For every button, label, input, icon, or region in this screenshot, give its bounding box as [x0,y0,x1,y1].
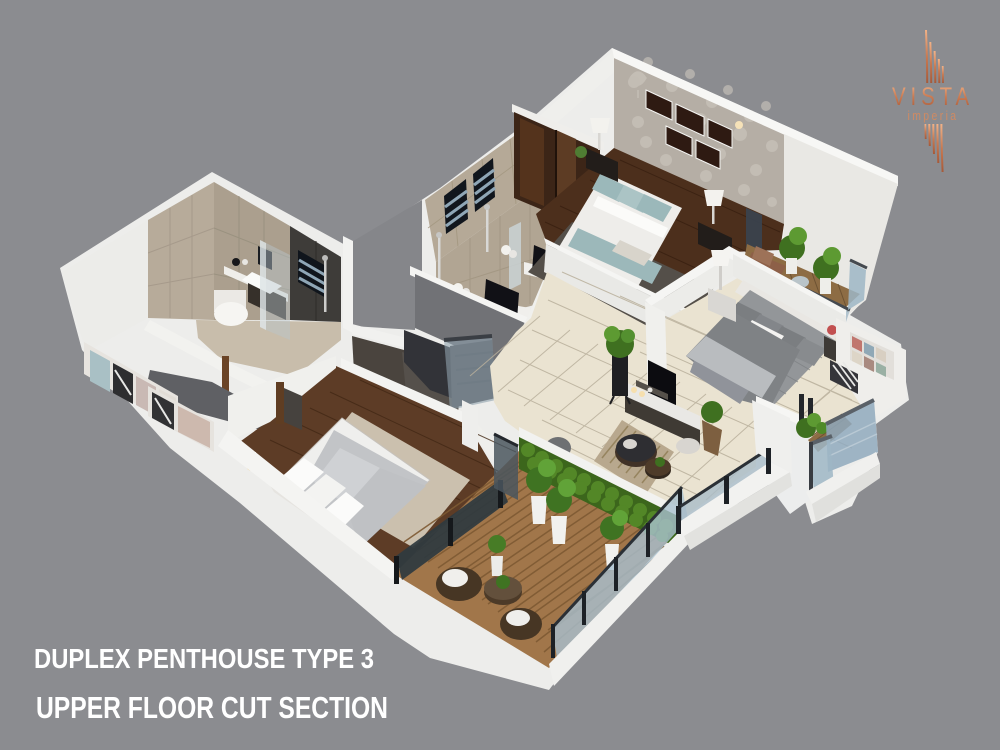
svg-text:DUPLEX PENTHOUSE TYPE 3: DUPLEX PENTHOUSE TYPE 3 [34,643,374,674]
svg-text:UPPER FLOOR CUT SECTION: UPPER FLOOR CUT SECTION [36,690,388,725]
svg-text:VISTA: VISTA [892,83,974,111]
svg-text:imperia: imperia [908,108,959,123]
